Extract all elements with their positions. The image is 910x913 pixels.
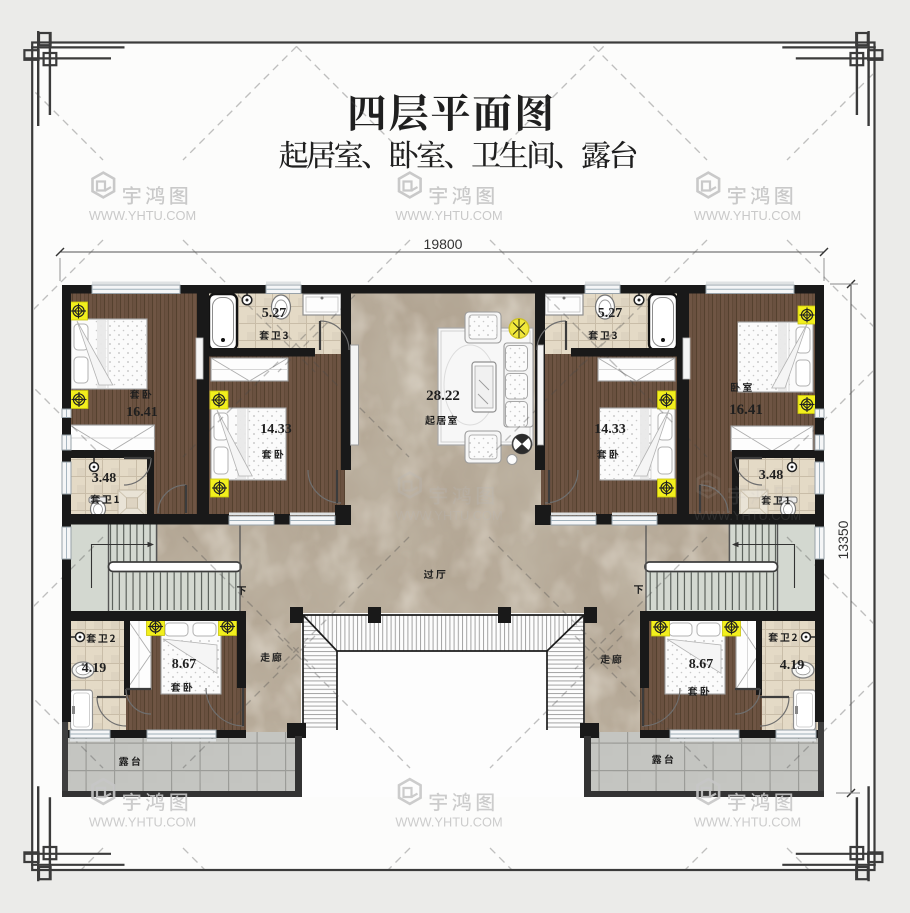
svg-text:WWW.YHTU.COM: WWW.YHTU.COM	[694, 815, 801, 830]
svg-text:13350: 13350	[835, 520, 851, 559]
svg-text:14.33: 14.33	[260, 422, 292, 437]
svg-text:4.19: 4.19	[780, 658, 805, 673]
svg-text:28.22: 28.22	[426, 388, 460, 404]
svg-text:16.41: 16.41	[126, 405, 158, 420]
svg-text:14.33: 14.33	[594, 422, 626, 437]
svg-text:WWW.YHTU.COM: WWW.YHTU.COM	[694, 508, 801, 523]
svg-text:WWW.YHTU.COM: WWW.YHTU.COM	[395, 508, 502, 523]
svg-text:WWW.YHTU.COM: WWW.YHTU.COM	[89, 815, 196, 830]
svg-text:8.67: 8.67	[689, 657, 714, 672]
svg-text:19800: 19800	[424, 236, 463, 252]
svg-text:16.41: 16.41	[729, 402, 763, 418]
svg-text:5.27: 5.27	[598, 306, 623, 321]
svg-text:WWW.YHTU.COM: WWW.YHTU.COM	[694, 208, 801, 223]
svg-text:3.48: 3.48	[92, 471, 117, 486]
svg-text:WWW.YHTU.COM: WWW.YHTU.COM	[395, 208, 502, 223]
svg-text:WWW.YHTU.COM: WWW.YHTU.COM	[89, 208, 196, 223]
svg-text:4.19: 4.19	[82, 661, 107, 676]
svg-text:5.27: 5.27	[262, 306, 287, 321]
svg-text:WWW.YHTU.COM: WWW.YHTU.COM	[395, 815, 502, 830]
svg-text:8.67: 8.67	[172, 657, 197, 672]
svg-text:3.48: 3.48	[759, 468, 784, 483]
